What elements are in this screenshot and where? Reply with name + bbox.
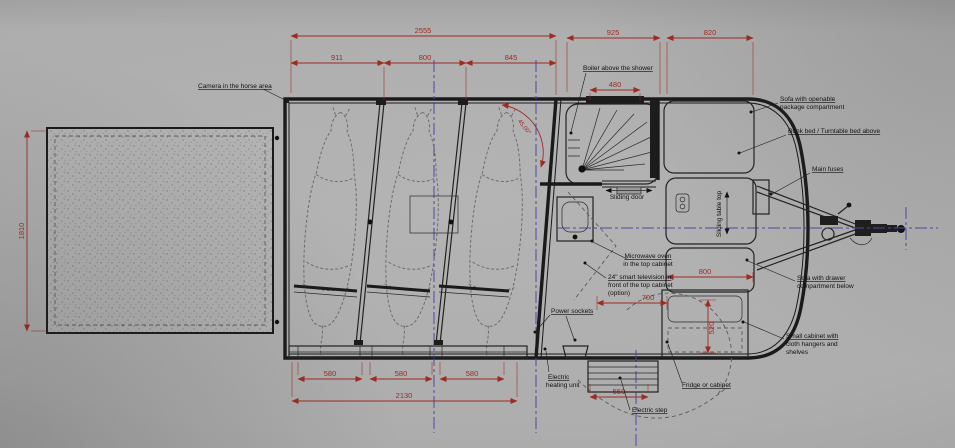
stall-partition-1	[354, 99, 386, 345]
drawing-canvas: 2555 911 800 845 925 820 480 1810 800 70…	[0, 0, 955, 448]
bunk-sofa	[664, 101, 754, 173]
dim-stall-1: 911	[331, 53, 343, 62]
label-fridge: Fridge or cabinet	[682, 382, 731, 389]
horse-2	[377, 104, 448, 358]
label-small-cabinet-2: cloth hangers and	[786, 341, 838, 348]
dim-ramp-length: 1810	[17, 223, 26, 240]
label-sliding-door: Sliding door	[610, 194, 645, 201]
label-camera: Camera in the horse area	[198, 83, 272, 90]
loading-ramp	[47, 128, 279, 333]
label-small-cabinet-1: Small cabinet with	[786, 333, 839, 340]
camera-unit	[285, 99, 289, 103]
dim-boiler-width: 480	[609, 80, 622, 89]
label-bunk: Bunk bed / Turntable bed above	[788, 128, 881, 135]
label-tv-3: (option)	[608, 290, 630, 297]
label-microwave-1: Microwave oven	[625, 253, 672, 260]
dim-bathroom-width: 925	[607, 28, 620, 37]
dim-floor-1: 580	[324, 369, 337, 378]
label-sofa-top-1: Sofa with openable	[780, 96, 836, 103]
dim-sofa-width: 800	[699, 267, 712, 276]
label-tv-1: 24" smart television in	[608, 274, 672, 281]
sink	[557, 197, 593, 241]
text-labels: Camera in the horse area Boiler above th…	[198, 65, 881, 414]
horse-3	[461, 104, 532, 358]
label-sliding-table: Sliding table top	[716, 190, 723, 237]
fridge-door-swing	[627, 293, 732, 395]
dim-front-width: 820	[704, 28, 717, 37]
butt-bars	[294, 286, 509, 297]
dim-stall-2: 800	[419, 53, 432, 62]
label-microwave-2: in the top cabinet	[623, 261, 673, 268]
dim-stall-3: 845	[505, 53, 518, 62]
floorplan-svg: 2555 911 800 845 925 820 480 1810 800 70…	[0, 0, 955, 448]
trailer-floorplan-drawing: 2555 911 800 845 925 820 480 1810 800 70…	[0, 0, 955, 448]
label-main-fuses: Main fuses	[812, 166, 844, 173]
drawbar-hitch	[753, 180, 905, 270]
label-sockets: Power sockets	[551, 308, 594, 315]
dim-aisle-width: 700	[642, 293, 655, 302]
dim-cabinet-depth: 520	[707, 322, 716, 335]
horse-1	[295, 104, 366, 358]
label-sofa-drawer-2: compartment below	[797, 283, 854, 290]
label-heating-1: Electric	[548, 374, 570, 381]
dim-floor-3: 580	[466, 369, 479, 378]
dinette	[666, 178, 756, 244]
horse-area	[285, 99, 532, 359]
label-tv-2: front of the top cabinet	[608, 282, 673, 289]
dim-floor-total: 2130	[396, 391, 413, 400]
label-boiler: Boiler above the shower	[583, 65, 654, 72]
boiler	[586, 96, 644, 103]
floor-mat-strip	[289, 346, 527, 358]
stall-partition-2	[434, 99, 468, 345]
shower-tray	[566, 104, 658, 184]
label-heating-2: heating unit	[546, 382, 580, 389]
heating-unit	[563, 346, 588, 358]
label-step: Electric step	[632, 407, 668, 414]
dim-wall-angle: 45.00°	[516, 119, 532, 137]
sliding-door	[540, 181, 656, 194]
label-small-cabinet-3: shelves	[786, 349, 809, 356]
dim-floor-2: 580	[395, 369, 408, 378]
label-sofa-drawer-1: Sofa with drawer	[797, 275, 846, 282]
bathroom-wall	[502, 99, 561, 358]
dim-top-total: 2555	[415, 26, 432, 35]
label-sofa-top-2: package compartment	[780, 104, 845, 111]
